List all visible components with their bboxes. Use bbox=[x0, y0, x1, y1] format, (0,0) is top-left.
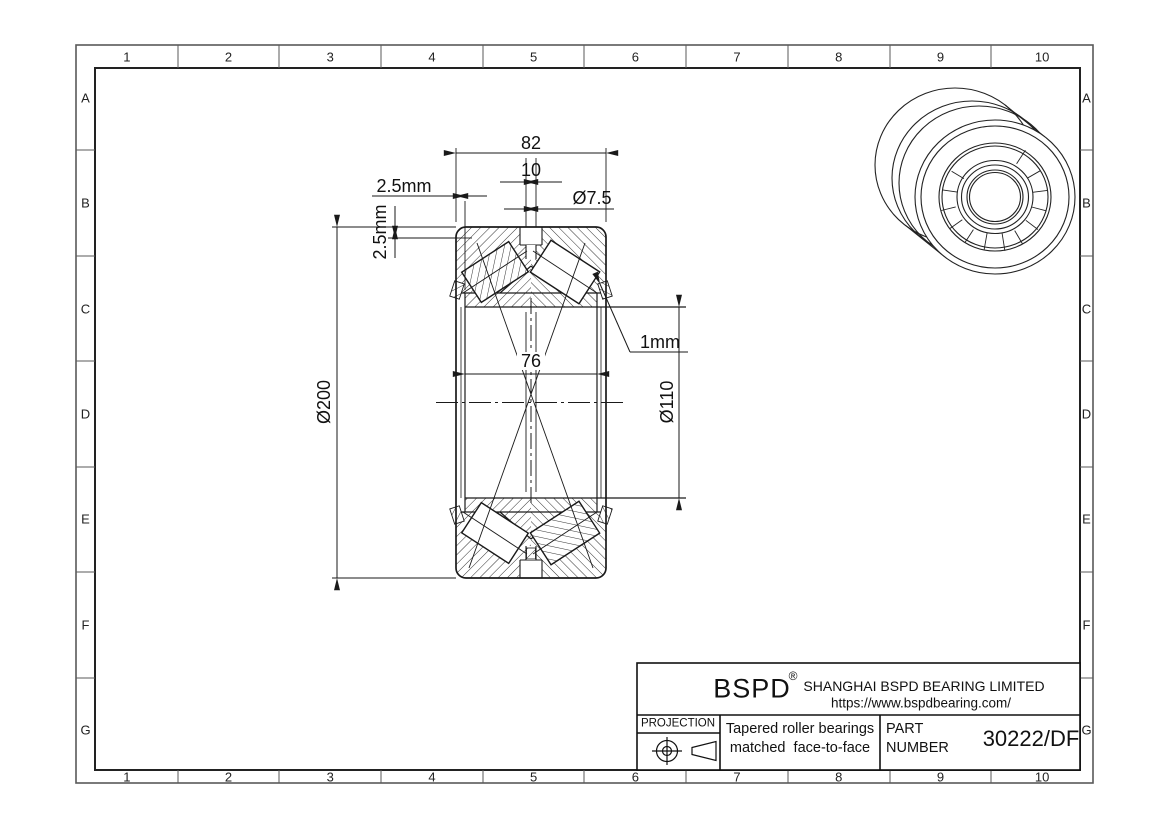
grid-row-label-left: E bbox=[81, 513, 90, 526]
grid-col-label-top: 10 bbox=[1035, 50, 1049, 63]
grid-col-label-top: 2 bbox=[225, 50, 232, 63]
grid-col-label-top: 6 bbox=[632, 50, 639, 63]
grid-col-label-bottom: 1 bbox=[123, 770, 130, 783]
description-line1: Tapered roller bearings bbox=[726, 722, 874, 737]
grid-col-label-top: 9 bbox=[937, 50, 944, 63]
grid-row-label-right: G bbox=[1081, 724, 1091, 737]
grid-col-label-top: 8 bbox=[835, 50, 842, 63]
company-website: https://www.bspdbearing.com/ bbox=[831, 696, 1011, 710]
dim-hole-dia-label: Ø7.5 bbox=[572, 189, 611, 207]
grid-row-label-left: B bbox=[81, 197, 90, 210]
grid-col-label-top: 4 bbox=[428, 50, 435, 63]
grid-row-label-left: A bbox=[81, 91, 90, 104]
part-number: 30222/DF bbox=[983, 728, 1080, 750]
grid-col-label-top: 5 bbox=[530, 50, 537, 63]
grid-row-label-left: C bbox=[81, 302, 90, 315]
grid-ticks-bottom bbox=[178, 770, 991, 783]
dim-ring-gap-label: 1mm bbox=[640, 333, 680, 351]
part-label-line2: NUMBER bbox=[886, 741, 949, 756]
grid-col-label-bottom: 4 bbox=[428, 770, 435, 783]
dim-outer-width-label: 82 bbox=[521, 134, 541, 152]
grid-row-label-right: F bbox=[1083, 618, 1091, 631]
grid-col-label-bottom: 5 bbox=[530, 770, 537, 783]
dim-od-step-label: 2.5mm bbox=[371, 204, 389, 259]
grid-col-label-bottom: 9 bbox=[937, 770, 944, 783]
grid-row-label-right: D bbox=[1082, 407, 1091, 420]
grid-col-label-bottom: 10 bbox=[1035, 770, 1049, 783]
grid-row-label-left: F bbox=[82, 618, 90, 631]
dim-outer-dia-label: Ø200 bbox=[315, 380, 333, 424]
grid-ticks-top bbox=[178, 45, 991, 68]
grid-col-label-bottom: 6 bbox=[632, 770, 639, 783]
part-label-line1: PART bbox=[886, 722, 923, 737]
grid-row-label-left: G bbox=[80, 724, 90, 737]
drawing-sheet: 82 10 Ø7.5 2.5mm 2.5mm Ø200 76 1mm Ø110 … bbox=[0, 0, 1170, 827]
grid-col-label-top: 7 bbox=[733, 50, 740, 63]
dim-face-offset-label: 2.5mm bbox=[376, 177, 431, 195]
dim-groove-width-label: 10 bbox=[521, 161, 541, 179]
grid-row-label-right: E bbox=[1082, 513, 1091, 526]
company-name: SHANGHAI BSPD BEARING LIMITED bbox=[803, 679, 1044, 693]
grid-col-label-bottom: 3 bbox=[327, 770, 334, 783]
grid-row-label-right: B bbox=[1082, 197, 1091, 210]
grid-row-label-left: D bbox=[81, 407, 90, 420]
grid-col-label-top: 1 bbox=[123, 50, 130, 63]
grid-row-label-right: A bbox=[1082, 91, 1091, 104]
grid-col-label-bottom: 7 bbox=[733, 770, 740, 783]
dim-inner-width-label: 76 bbox=[517, 352, 545, 370]
registered-mark: ® bbox=[789, 670, 798, 682]
bearing-section bbox=[436, 227, 686, 578]
grid-col-label-top: 3 bbox=[327, 50, 334, 63]
brand-logo: BSPD bbox=[713, 676, 791, 703]
grid-col-label-bottom: 8 bbox=[835, 770, 842, 783]
bearing-3d bbox=[875, 88, 1075, 274]
grid-col-label-bottom: 2 bbox=[225, 770, 232, 783]
grid-row-label-right: C bbox=[1082, 302, 1091, 315]
projection-label: PROJECTION bbox=[641, 718, 715, 730]
description-line2: matched face-to-face bbox=[730, 741, 870, 756]
dim-bore-dia-label: Ø110 bbox=[658, 381, 676, 424]
